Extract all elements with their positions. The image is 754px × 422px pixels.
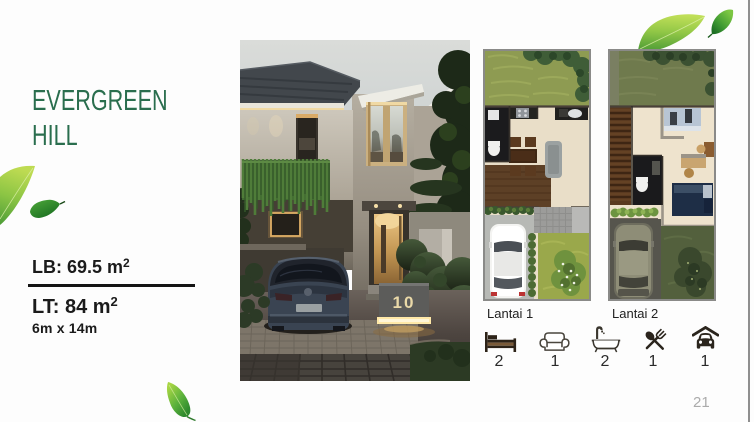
- svg-text:10: 10: [393, 293, 416, 312]
